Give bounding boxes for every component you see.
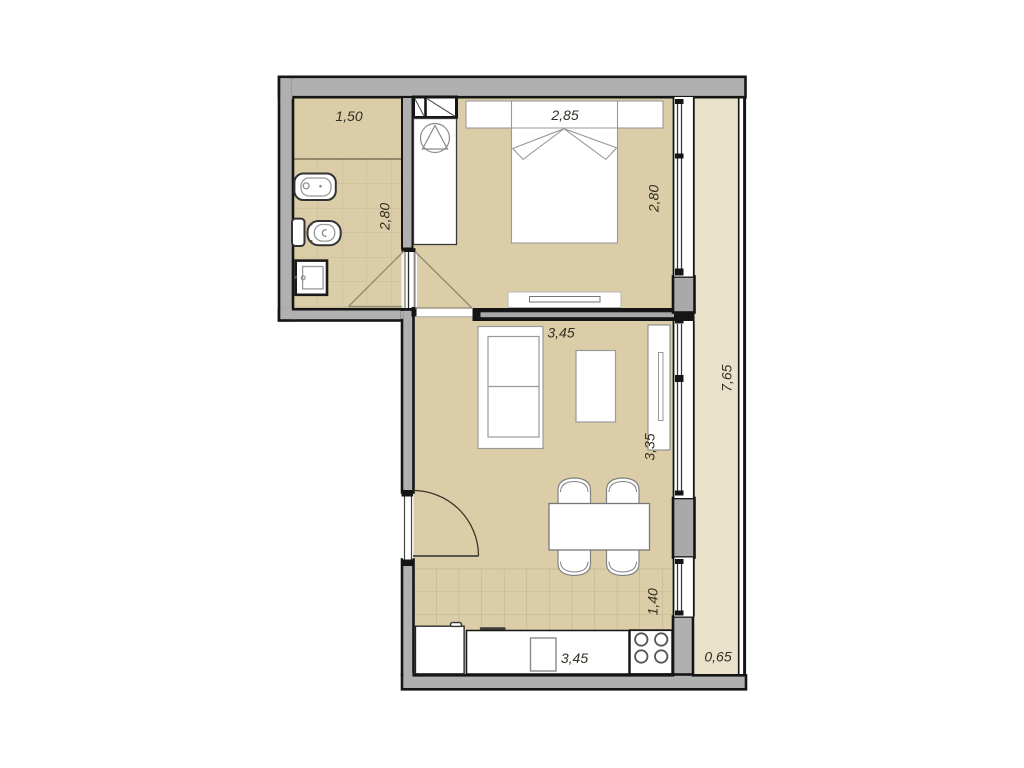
svg-text:0,65: 0,65 xyxy=(704,649,731,665)
svg-text:3,45: 3,45 xyxy=(547,325,574,341)
svg-text:1,40: 1,40 xyxy=(645,588,661,615)
svg-text:2,80: 2,80 xyxy=(646,185,662,213)
svg-text:7,65: 7,65 xyxy=(719,364,735,391)
svg-text:2,80: 2,80 xyxy=(377,203,393,231)
svg-text:1,50: 1,50 xyxy=(335,108,362,124)
svg-text:2,85: 2,85 xyxy=(550,107,578,123)
svg-text:3,35: 3,35 xyxy=(642,433,658,460)
svg-text:3,45: 3,45 xyxy=(561,650,588,666)
